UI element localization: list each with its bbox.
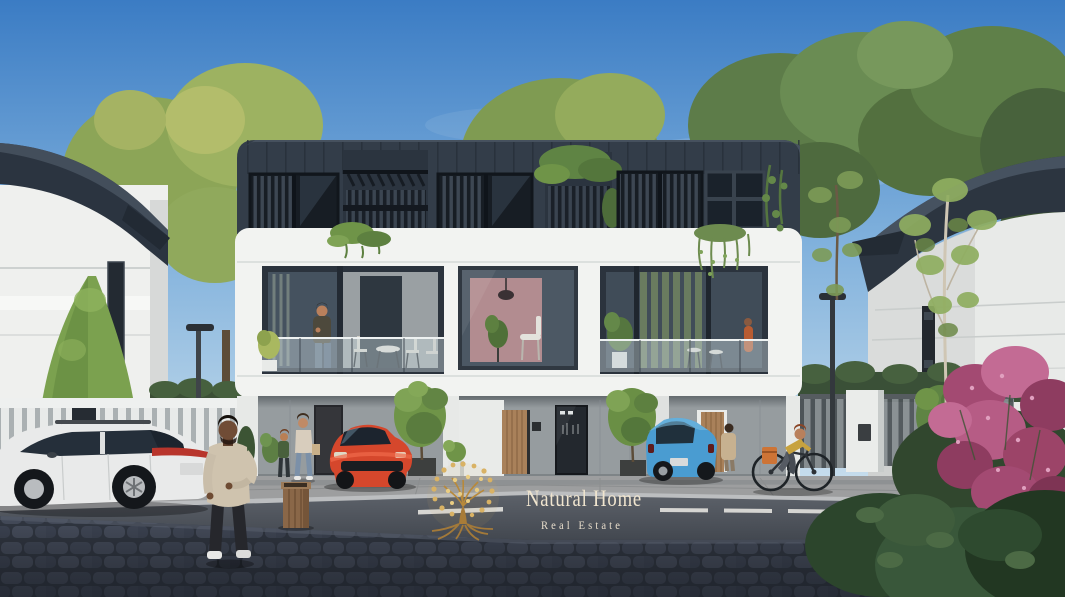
window-bay-2 <box>458 266 578 370</box>
foreground-shrub-right <box>805 490 1065 597</box>
shopping-bag <box>312 444 320 455</box>
watermark-title: Natural Home <box>526 486 642 511</box>
pillar-plaque <box>858 424 871 441</box>
balcony-bay-3 <box>600 266 768 374</box>
pergola-recess-2 <box>534 145 622 234</box>
main-building <box>235 140 802 479</box>
balcony-bay-1 <box>262 266 444 374</box>
white-suv-front-wheel <box>14 469 54 509</box>
orange-pannier-bag <box>762 447 777 464</box>
top-floor-windows <box>250 172 764 232</box>
wooden-bin <box>278 482 314 531</box>
render-canvas: Natural Home Real Estate <box>0 0 1065 597</box>
white-suv-rear-wheel <box>112 465 156 509</box>
watermark-subtitle: Real Estate <box>541 518 623 532</box>
unit2-number-plaque <box>532 422 541 431</box>
man-shirt <box>207 442 250 507</box>
license-plate <box>180 463 203 475</box>
glass-balustrade-3 <box>600 340 768 372</box>
pergola-recess-1 <box>343 150 428 234</box>
red-car-grille <box>341 461 403 471</box>
unit2-dark-window <box>556 406 587 474</box>
unit2-wood-door <box>502 410 527 474</box>
glass-balustrade-1 <box>262 338 444 372</box>
